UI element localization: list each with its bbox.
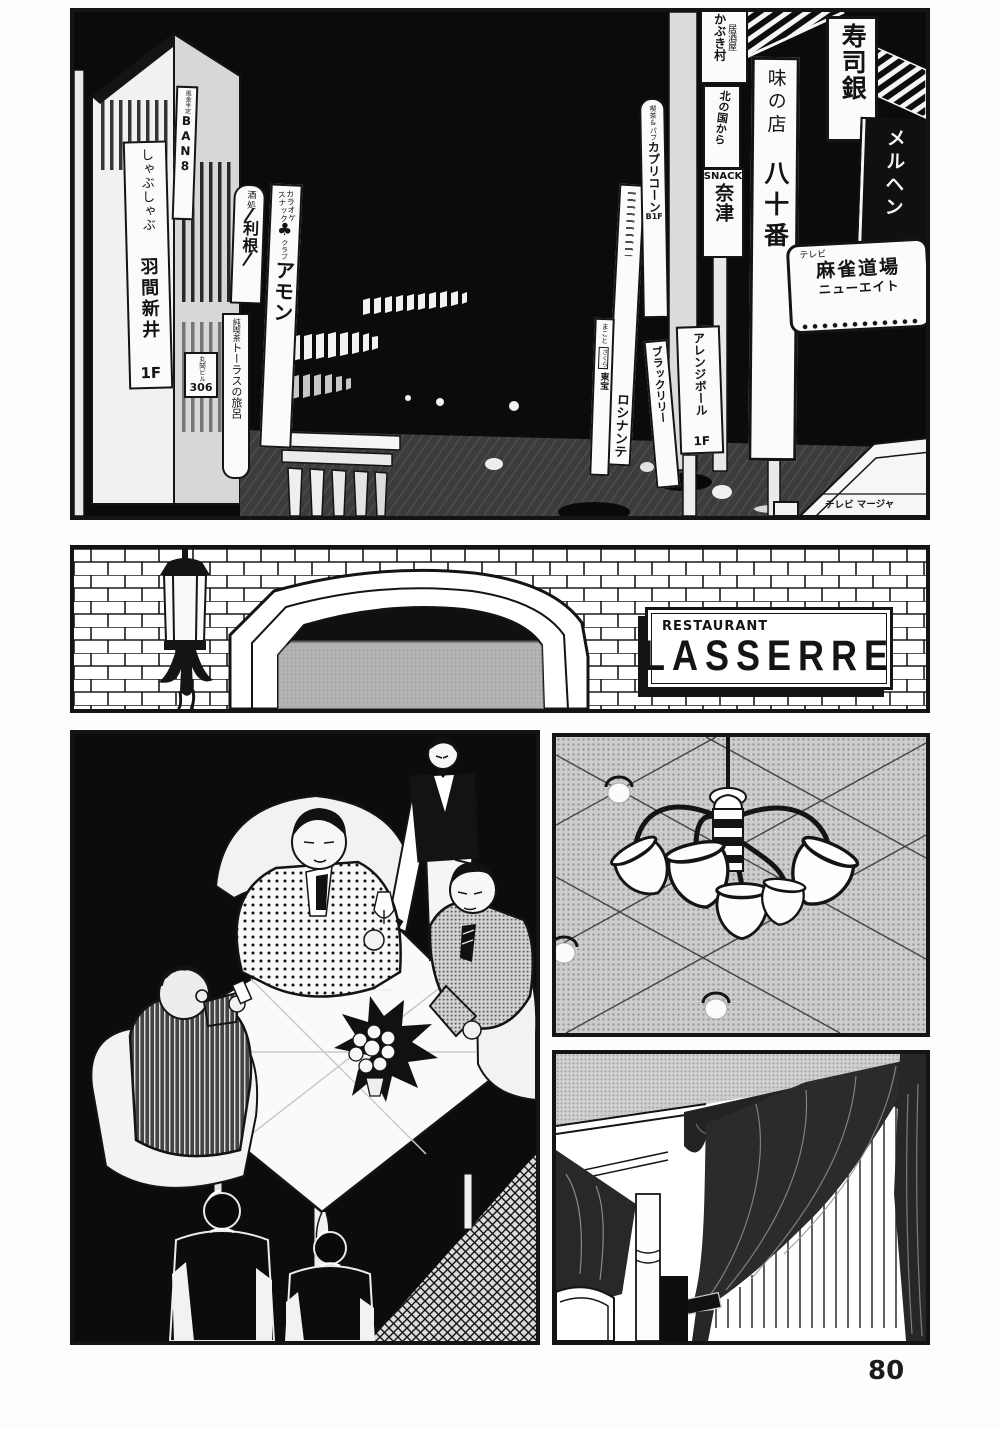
sign-kitanokuni: 北の国から	[703, 85, 741, 169]
sign-mahjong-main: 麻雀道場	[816, 256, 901, 280]
restaurant-sign-name: LASSERRE	[643, 631, 895, 681]
sign-kitanokuni-name: 北の国から	[713, 89, 731, 145]
restaurant-sign: RESTAURANT LASSERRE	[645, 607, 893, 690]
club-icon: ♣	[277, 222, 293, 240]
sign-snack-natsu: SNACK 奈津	[702, 168, 744, 258]
sign-makoto-top: まこと	[600, 323, 608, 344]
sign-aji-line2: 八十番	[760, 160, 790, 253]
chandelier-art	[556, 737, 926, 1033]
sign-capricorn-name: カプリコーン	[646, 141, 660, 213]
dinner-art	[74, 734, 536, 1341]
sign-taurus-cafe: 純喫茶 トーラスの旅呂	[222, 313, 250, 479]
panel-chandelier	[552, 733, 930, 1037]
sign-kabuki-name: かぶき村	[713, 13, 726, 61]
column	[636, 1194, 660, 1341]
panel-restaurant-facade: RESTAURANT LASSERRE	[70, 545, 930, 713]
page-number: 80	[868, 1356, 904, 1386]
sign-ban8-main: BAN8	[178, 114, 193, 174]
sign-arrange-ball-floor: 1F	[693, 435, 710, 448]
sign-mahjong-sub: ニューエイト	[818, 279, 900, 296]
sign-taurus-name: トーラスの旅呂	[230, 342, 242, 419]
sign-shabu-kana: しゃぶしゃぶ	[138, 148, 154, 232]
sign-306-name: 丸岡ビル	[198, 356, 205, 382]
illegible-small-text	[625, 192, 636, 256]
sign-tone-small: 酒処	[244, 190, 254, 210]
sign-makoto-bottom: 東宝	[597, 372, 607, 390]
sign-kabuki-mura: 居酒屋 かぶき村	[700, 8, 748, 84]
sign-sushi-gin-name: 寿司銀	[839, 23, 866, 101]
sign-arrange-ball: アレンジボール 1F	[676, 325, 724, 454]
sign-makoto-mid: さくら	[598, 347, 609, 369]
sign-rocinante-name: ロシナンテ	[611, 393, 628, 459]
sign-shabu-floor: 1F	[140, 366, 161, 382]
sign-shabushabu: しゃぶしゃぶ 羽間新井 1F	[123, 140, 173, 389]
panel-street-night: 風金半定 BAN8 しゃぶしゃぶ 羽間新井 1F 酒処 利根 カラオケ スナック…	[70, 8, 930, 520]
sign-marchen-name: メルヘン	[882, 128, 905, 221]
sign-ban8: 風金半定 BAN8	[172, 86, 199, 221]
sign-natsu-name: 奈津	[713, 183, 733, 223]
sign-building-306: 丸岡ビル 306	[184, 352, 218, 398]
archway	[230, 570, 588, 709]
sign-capricorn: 喫茶&パブ カプリコーン B1F	[639, 98, 669, 318]
sign-black-lily-name: ブラックリリー	[650, 346, 668, 424]
sign-natsu-small: SNACK	[704, 172, 742, 183]
manga-page: 風金半定 BAN8 しゃぶしゃぶ 羽間新井 1F 酒処 利根 カラオケ スナック…	[0, 0, 1000, 1429]
sign-shabu-name: 羽間新井	[138, 257, 159, 341]
restaurant-sign-inner: RESTAURANT LASSERRE	[651, 613, 887, 684]
sign-capricorn-floor: B1F	[646, 213, 663, 222]
sign-306-number: 306	[190, 382, 213, 394]
sign-mahjong-dojo: テレビ 麻雀道場 ニューエイト	[786, 237, 930, 334]
sign-ban8-small: 風金半定	[183, 90, 190, 114]
curtains-art	[556, 1054, 926, 1341]
panel-dinner-scene	[70, 730, 540, 1345]
sign-taurus-small: 純喫茶	[232, 318, 240, 342]
sign-arrange-ball-name: アレンジボール	[692, 332, 708, 416]
sign-tone: 酒処 利根	[230, 183, 266, 304]
balustrade	[278, 432, 400, 516]
window-frame	[556, 1287, 614, 1341]
sign-aji-line1: 味の店	[764, 68, 787, 137]
sign-capricorn-small: 喫茶&パブ	[648, 105, 656, 141]
dark-doorway	[660, 1276, 688, 1341]
panel-curtains	[552, 1050, 930, 1345]
chandelier	[608, 737, 860, 939]
sign-tone-name: 利根	[239, 220, 257, 255]
sign-amon-small: クラブ	[280, 239, 288, 260]
sign-kabuki-small: 居酒屋	[726, 13, 736, 61]
awning-text: テレビ マージャ	[825, 495, 929, 511]
sign-amon-line2: スナック	[276, 190, 287, 223]
sign-amon-name: アモン	[270, 260, 294, 324]
